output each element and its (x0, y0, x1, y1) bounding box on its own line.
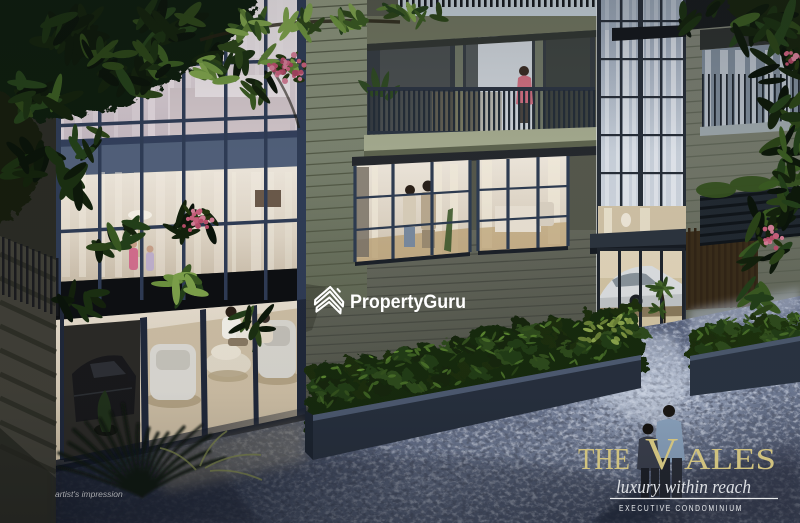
svg-text:ALES: ALES (684, 441, 776, 476)
svg-text:PropertyGuru: PropertyGuru (350, 291, 466, 313)
svg-text:luxury within reach: luxury within reach (616, 477, 751, 498)
svg-text:THE: THE (578, 441, 630, 476)
svg-text:artist's impression: artist's impression (55, 489, 123, 499)
svg-text:EXECUTIVE CONDOMINIUM: EXECUTIVE CONDOMINIUM (619, 504, 743, 513)
svg-text:V: V (645, 428, 678, 479)
